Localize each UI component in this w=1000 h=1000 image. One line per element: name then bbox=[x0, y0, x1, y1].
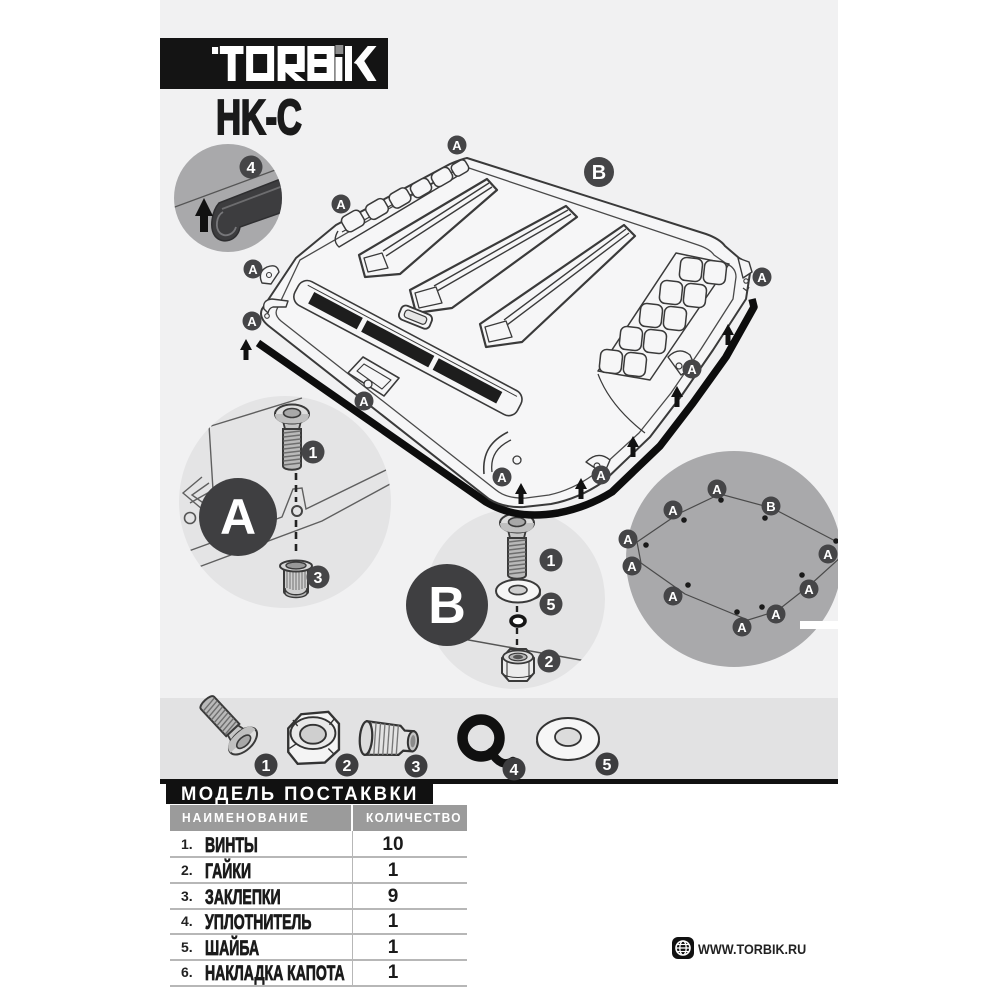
svg-text:A: A bbox=[668, 589, 678, 604]
svg-text:4: 4 bbox=[510, 762, 519, 779]
svg-text:A: A bbox=[687, 362, 697, 377]
svg-text:5: 5 bbox=[547, 597, 556, 614]
svg-text:2: 2 bbox=[545, 654, 554, 671]
svg-text:4: 4 bbox=[247, 160, 256, 177]
svg-text:A: A bbox=[336, 197, 346, 212]
svg-text:2: 2 bbox=[343, 758, 352, 775]
svg-text:A: A bbox=[771, 607, 781, 622]
svg-text:A: A bbox=[823, 547, 833, 562]
svg-text:A: A bbox=[627, 559, 637, 574]
svg-text:A: A bbox=[712, 482, 722, 497]
svg-text:1: 1 bbox=[309, 445, 318, 462]
svg-text:A: A bbox=[737, 620, 747, 635]
svg-text:A: A bbox=[596, 468, 606, 483]
svg-text:A: A bbox=[623, 532, 633, 547]
svg-text:1: 1 bbox=[262, 758, 271, 775]
svg-text:A: A bbox=[359, 394, 369, 409]
svg-text:A: A bbox=[804, 582, 814, 597]
svg-text:A: A bbox=[668, 503, 678, 518]
svg-text:3: 3 bbox=[412, 759, 421, 776]
svg-text:5: 5 bbox=[603, 757, 612, 774]
svg-text:A: A bbox=[220, 489, 256, 545]
svg-text:A: A bbox=[248, 262, 258, 277]
svg-text:B: B bbox=[428, 577, 466, 635]
svg-text:A: A bbox=[497, 470, 507, 485]
svg-text:1: 1 bbox=[547, 553, 556, 570]
svg-text:B: B bbox=[592, 162, 606, 184]
svg-text:B: B bbox=[766, 499, 775, 514]
svg-text:A: A bbox=[247, 314, 257, 329]
svg-text:3: 3 bbox=[314, 570, 323, 587]
svg-text:A: A bbox=[452, 138, 462, 153]
svg-text:A: A bbox=[757, 270, 767, 285]
